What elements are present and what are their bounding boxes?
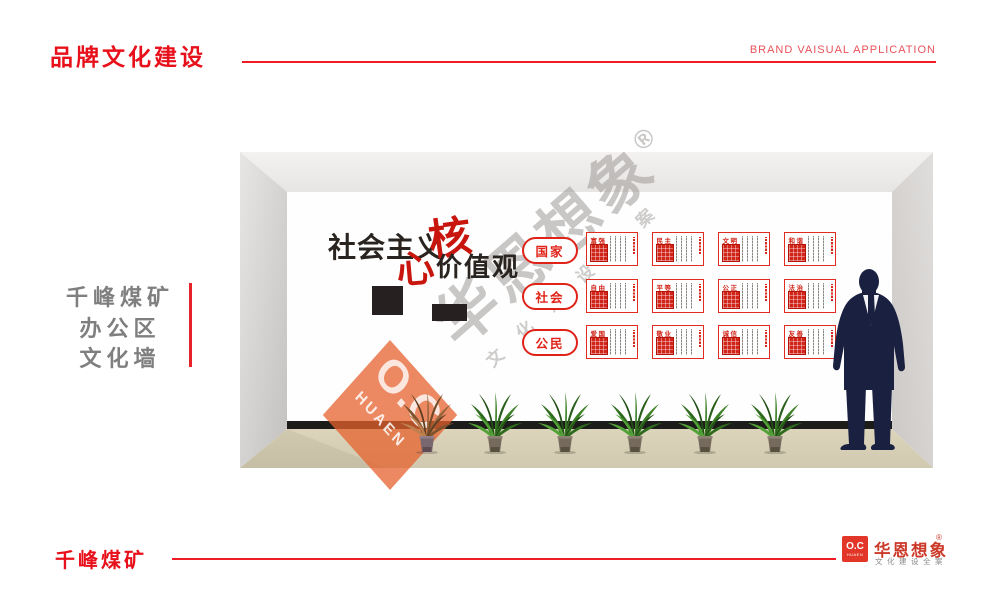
poster-title: 公正 (723, 282, 739, 292)
poster-title: 爱国 (591, 328, 607, 338)
papercut-stamp-icon (656, 337, 674, 355)
value-poster: 富强 (586, 232, 638, 266)
poster-title: 法治 (789, 282, 805, 292)
value-poster: 公正 (718, 279, 770, 313)
poster-red-seal-column (765, 237, 768, 254)
value-poster: 民主 (652, 232, 704, 266)
businessman-silhouette (824, 268, 916, 454)
room-left-wall (240, 152, 287, 468)
section-label-line2: 办公区 (62, 314, 178, 345)
papercut-stamp-icon (722, 291, 740, 309)
section-label: 千峰煤矿 办公区 文化墙 (62, 283, 178, 375)
brand-logo: O.C HUAEN (842, 536, 868, 562)
brand-manual-page: 品牌文化建设 BRAND VAISUAL APPLICATION 千峰煤矿 办公… (0, 0, 992, 598)
papercut-stamp-icon (788, 337, 806, 355)
category-badge-nation: 国家 (522, 237, 578, 264)
brand-logo-mark: O.C (846, 541, 864, 552)
category-badge-society: 社会 (522, 283, 578, 310)
poster-red-seal-column (633, 330, 636, 347)
brand-logo-text: HUAEN (847, 552, 864, 557)
footer-rule (172, 558, 836, 560)
plant (678, 392, 732, 454)
header-rule (242, 61, 936, 63)
poster-red-seal-column (633, 284, 636, 301)
value-poster: 敬业 (652, 325, 704, 359)
section-label-line1: 千峰煤矿 (62, 283, 178, 314)
poster-title: 敬业 (657, 328, 673, 338)
page-subtitle: BRAND VAISUAL APPLICATION (636, 44, 936, 56)
poster-title: 诚信 (723, 328, 739, 338)
poster-red-seal-column (699, 330, 702, 347)
poster-title: 自由 (591, 282, 607, 292)
papercut-stamp-icon (656, 291, 674, 309)
papercut-stamp-icon (590, 337, 608, 355)
poster-text-columns (742, 329, 762, 355)
plant-dry (400, 392, 454, 454)
value-poster: 平等 (652, 279, 704, 313)
poster-text-columns (742, 236, 762, 262)
poster-title: 友善 (789, 328, 805, 338)
poster-red-seal-column (699, 284, 702, 301)
poster-red-seal-column (765, 284, 768, 301)
brand-tagline: 文化建设全案 (875, 556, 947, 567)
poster-text-columns (676, 236, 696, 262)
papercut-stamp-icon (656, 244, 674, 262)
poster-title: 民主 (657, 235, 673, 245)
plant (468, 392, 522, 454)
value-poster: 文明 (718, 232, 770, 266)
registered-mark-icon: ® (936, 533, 942, 542)
poster-red-seal-column (633, 237, 636, 254)
papercut-stamp-icon (722, 337, 740, 355)
footer-client-name: 千峰煤矿 (55, 544, 147, 573)
plant (608, 392, 662, 454)
poster-text-columns (610, 329, 630, 355)
papercut-stamp-icon (722, 244, 740, 262)
papercut-stamp-icon (590, 244, 608, 262)
papercut-stamp-icon (788, 244, 806, 262)
value-poster: 自由 (586, 279, 638, 313)
poster-text-columns (808, 236, 828, 262)
value-poster: 诚信 (718, 325, 770, 359)
poster-red-seal-column (831, 237, 834, 254)
poster-text-columns (676, 283, 696, 309)
category-badge-citizen: 公民 (522, 329, 578, 356)
poster-title: 平等 (657, 282, 673, 292)
poster-text-columns (742, 283, 762, 309)
page-title: 品牌文化建设 (50, 38, 206, 72)
plant-row (352, 390, 822, 454)
poster-title: 和谐 (789, 235, 805, 245)
plant (748, 392, 802, 454)
poster-text-columns (676, 329, 696, 355)
papercut-stamp-icon (590, 291, 608, 309)
section-accent-line (189, 283, 192, 367)
poster-text-columns (610, 283, 630, 309)
wall-decor-square-large (372, 286, 403, 315)
poster-text-columns (610, 236, 630, 262)
section-label-line3: 文化墙 (62, 344, 178, 375)
poster-title: 文明 (723, 235, 739, 245)
value-poster: 和谐 (784, 232, 836, 266)
plant (538, 392, 592, 454)
value-poster: 爱国 (586, 325, 638, 359)
poster-red-seal-column (699, 237, 702, 254)
wall-decor-square-small (432, 304, 467, 321)
poster-red-seal-column (765, 330, 768, 347)
wall-title-tail: 价值观 (436, 247, 520, 284)
poster-title: 富强 (591, 235, 607, 245)
papercut-stamp-icon (788, 291, 806, 309)
